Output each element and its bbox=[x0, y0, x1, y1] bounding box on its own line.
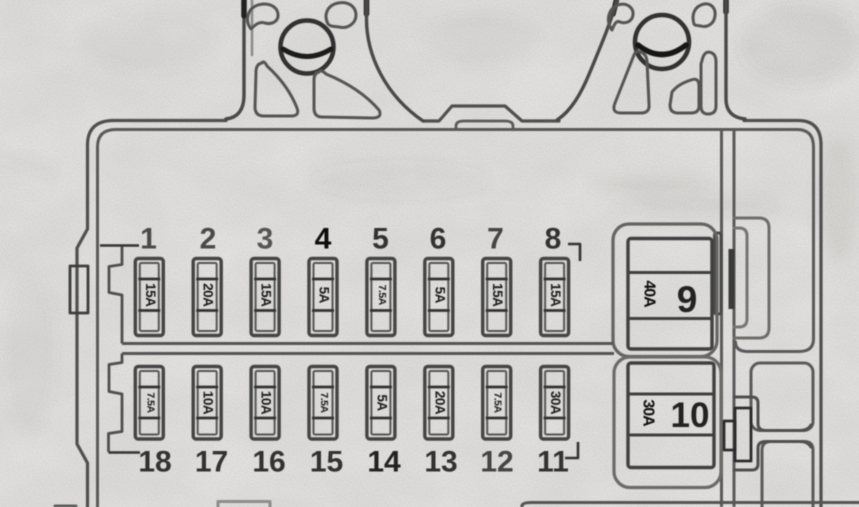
svg-text:2: 2 bbox=[200, 223, 217, 256]
svg-text:40A: 40A bbox=[641, 280, 658, 308]
svg-text:6: 6 bbox=[430, 223, 447, 256]
svg-text:15: 15 bbox=[310, 446, 343, 479]
svg-text:5A: 5A bbox=[374, 394, 389, 411]
svg-text:7: 7 bbox=[487, 223, 504, 256]
svg-text:17: 17 bbox=[195, 446, 228, 479]
svg-text:7.5A: 7.5A bbox=[144, 392, 156, 413]
svg-text:9: 9 bbox=[677, 279, 698, 320]
svg-text:11: 11 bbox=[537, 446, 569, 479]
svg-text:14: 14 bbox=[367, 446, 401, 479]
svg-text:3: 3 bbox=[257, 223, 274, 256]
svg-text:15A: 15A bbox=[548, 283, 563, 307]
svg-text:7.5A: 7.5A bbox=[492, 392, 504, 413]
svg-text:15A: 15A bbox=[490, 283, 505, 307]
svg-text:1: 1 bbox=[140, 223, 157, 256]
svg-text:10: 10 bbox=[671, 396, 710, 435]
svg-text:5A: 5A bbox=[432, 287, 447, 304]
svg-text:16: 16 bbox=[252, 446, 285, 479]
svg-text:15A: 15A bbox=[143, 283, 158, 307]
svg-text:8: 8 bbox=[545, 223, 562, 256]
svg-text:15A: 15A bbox=[259, 283, 274, 307]
svg-text:20A: 20A bbox=[432, 391, 447, 415]
svg-text:13: 13 bbox=[424, 446, 457, 479]
svg-text:10A: 10A bbox=[259, 391, 274, 415]
svg-text:4: 4 bbox=[315, 223, 332, 256]
svg-text:18: 18 bbox=[138, 446, 171, 479]
svg-text:5A: 5A bbox=[317, 287, 332, 304]
svg-text:10A: 10A bbox=[201, 391, 216, 415]
svg-text:30A: 30A bbox=[640, 399, 657, 427]
svg-text:7.5A: 7.5A bbox=[376, 285, 388, 306]
svg-text:12: 12 bbox=[480, 446, 513, 479]
svg-text:7.5A: 7.5A bbox=[318, 392, 330, 413]
svg-text:5: 5 bbox=[372, 223, 389, 256]
svg-text:30A: 30A bbox=[548, 391, 563, 415]
svg-text:20A: 20A bbox=[201, 283, 216, 307]
